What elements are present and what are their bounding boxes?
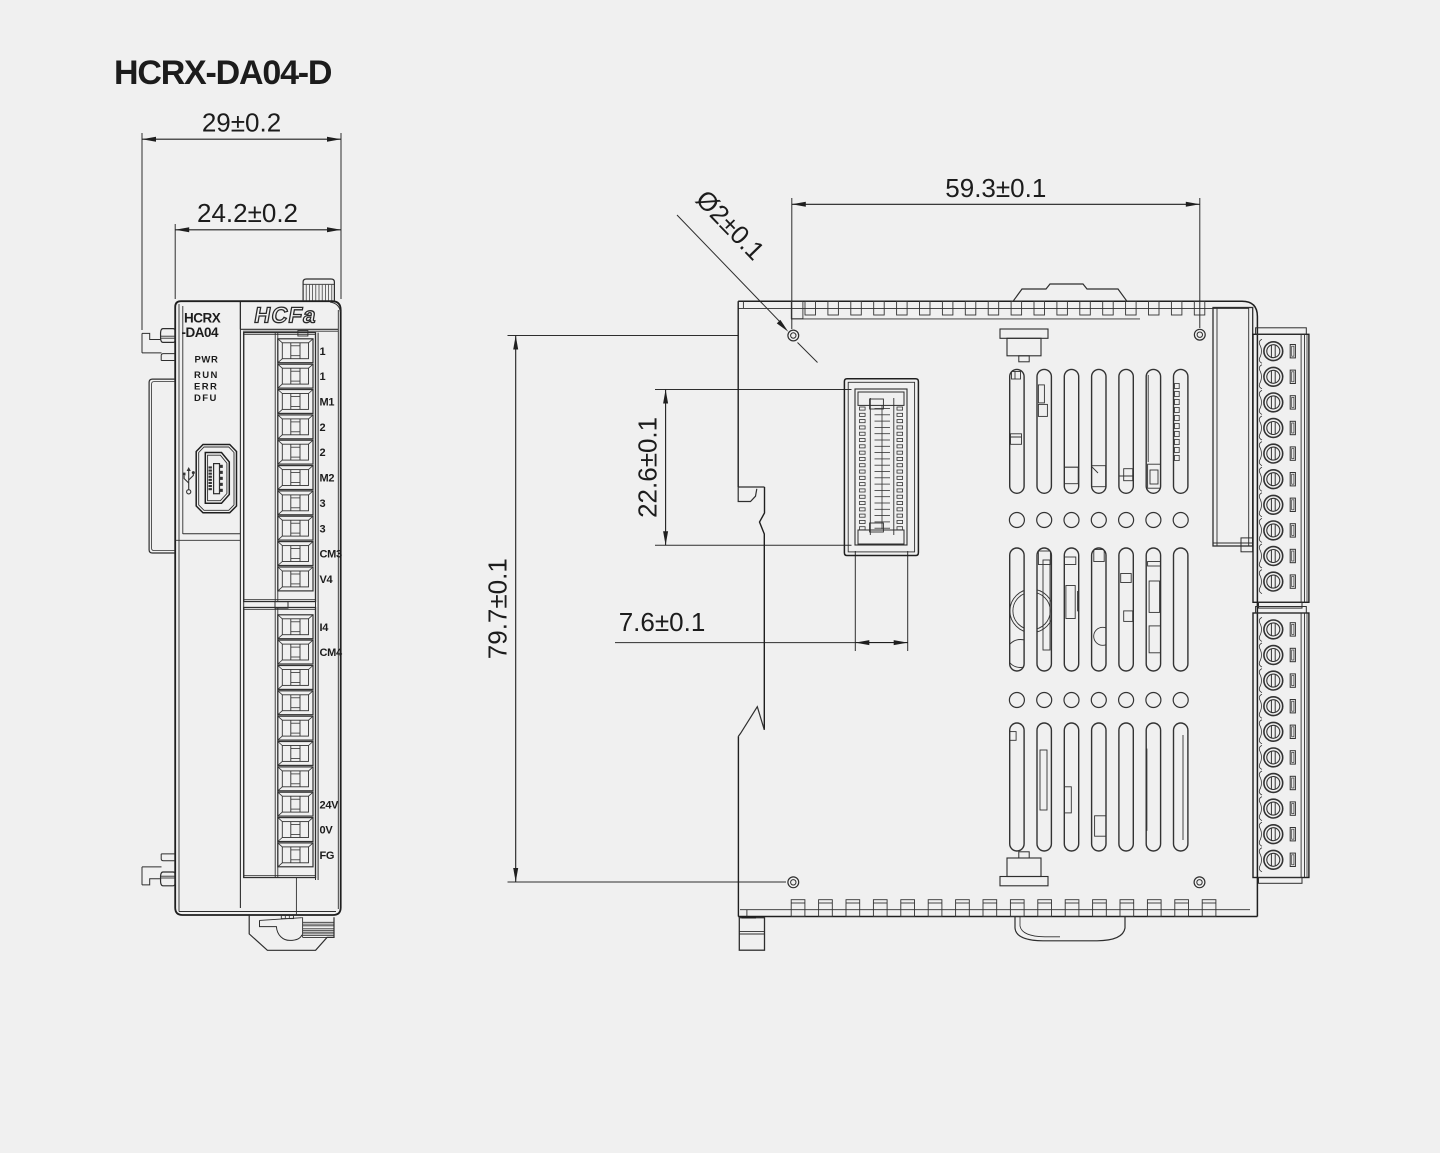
svg-text:HCRX: HCRX <box>184 311 221 326</box>
svg-text:59.3±0.1: 59.3±0.1 <box>945 173 1046 203</box>
svg-text:DFU: DFU <box>194 393 218 404</box>
svg-text:CM4: CM4 <box>320 647 344 659</box>
svg-text:ERR: ERR <box>194 382 218 393</box>
svg-text:FG: FG <box>320 850 335 862</box>
svg-text:PWR: PWR <box>195 355 219 366</box>
svg-text:22.6±0.1: 22.6±0.1 <box>633 417 663 518</box>
svg-text:1: 1 <box>320 346 326 358</box>
svg-text:24V: 24V <box>320 799 340 811</box>
svg-text:M1: M1 <box>320 397 335 409</box>
svg-text:-DA04: -DA04 <box>182 325 220 340</box>
svg-text:M2: M2 <box>320 473 335 485</box>
svg-text:24.2±0.2: 24.2±0.2 <box>197 198 298 228</box>
svg-text:79.7±0.1: 79.7±0.1 <box>483 558 513 659</box>
svg-text:I4: I4 <box>320 622 330 634</box>
svg-text:7.6±0.1: 7.6±0.1 <box>619 607 706 637</box>
svg-text:RUN: RUN <box>194 370 219 381</box>
svg-text:1: 1 <box>320 371 326 383</box>
svg-text:HCRX-DA04-D: HCRX-DA04-D <box>114 54 332 92</box>
svg-text:V4: V4 <box>320 574 334 586</box>
svg-text:3: 3 <box>320 498 326 510</box>
svg-text:2: 2 <box>320 422 326 434</box>
svg-text:3: 3 <box>320 523 326 535</box>
svg-text:0V: 0V <box>320 825 334 837</box>
svg-text:CM3: CM3 <box>320 549 343 561</box>
svg-text:29±0.2: 29±0.2 <box>202 108 281 138</box>
svg-text:2: 2 <box>320 447 326 459</box>
svg-text:HCFa: HCFa <box>253 303 320 328</box>
